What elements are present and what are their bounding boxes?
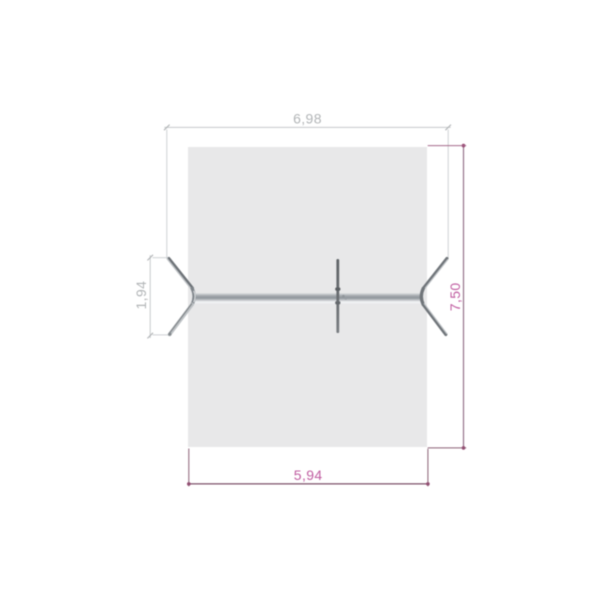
svg-text:5,94: 5,94 xyxy=(294,467,323,483)
svg-text:6,98: 6,98 xyxy=(293,110,322,126)
svg-text:1,94: 1,94 xyxy=(133,281,149,310)
svg-text:7,50: 7,50 xyxy=(447,282,463,311)
